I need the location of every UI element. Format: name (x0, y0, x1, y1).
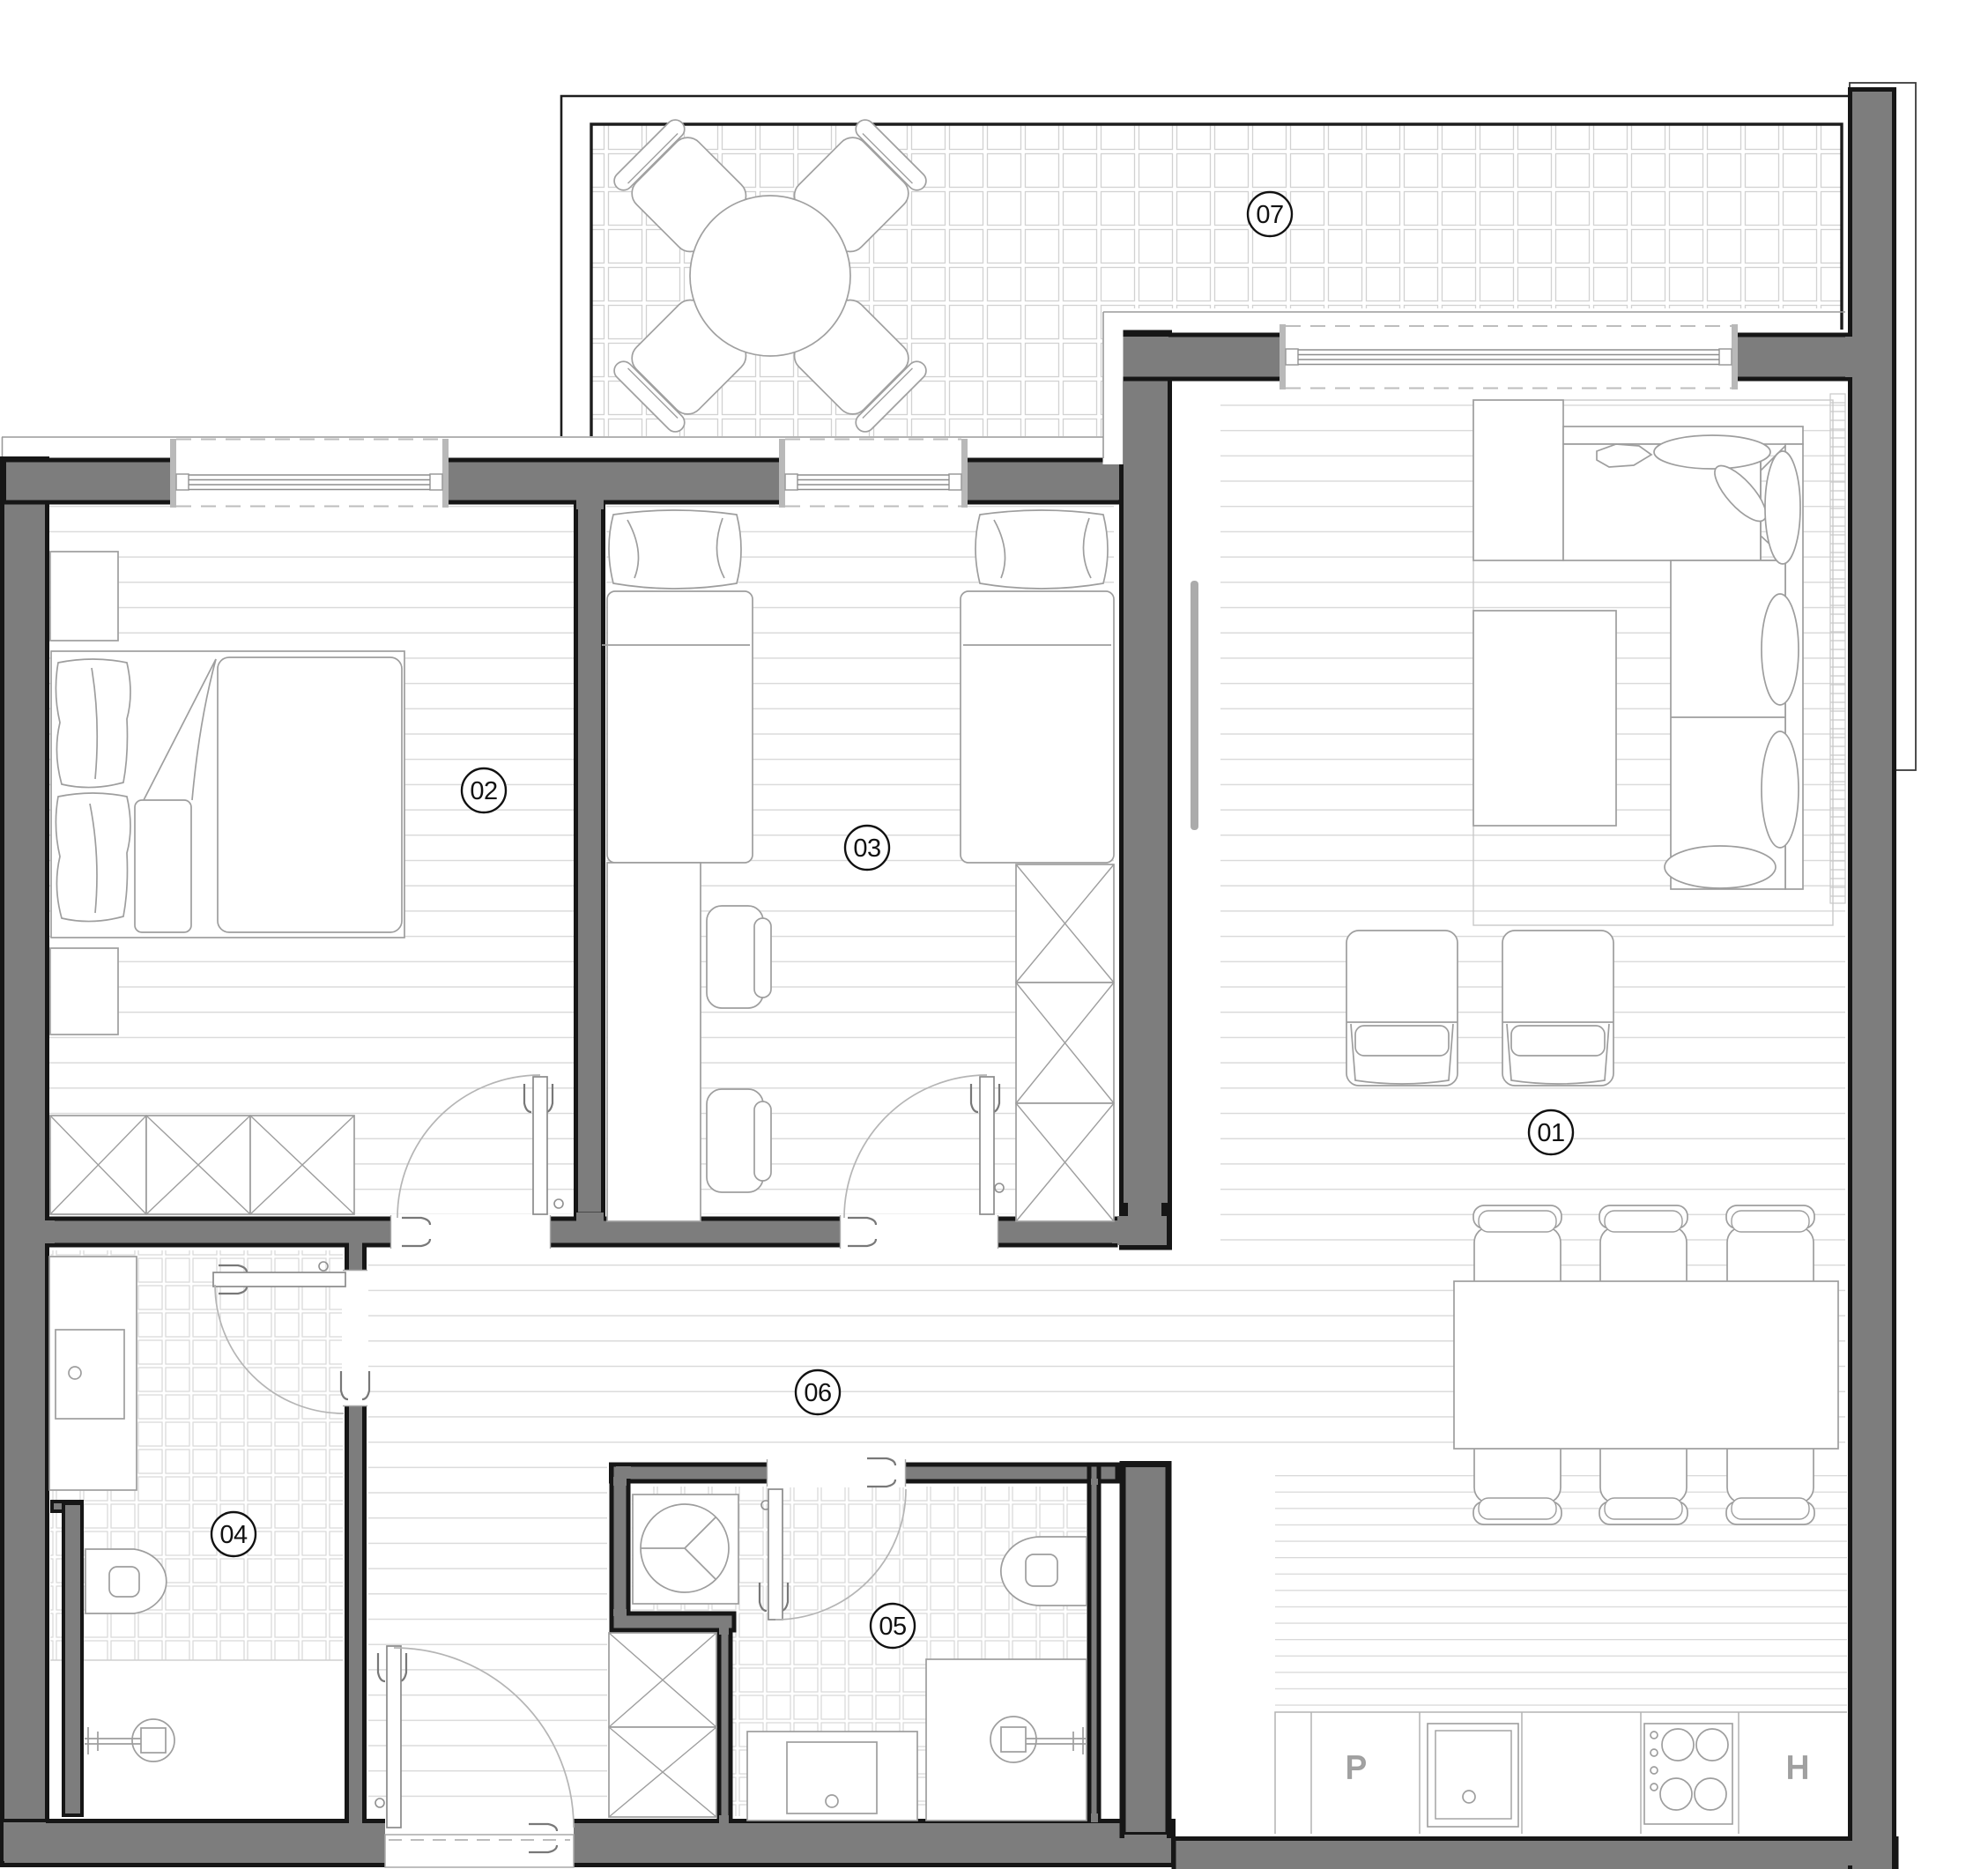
svg-text:02: 02 (470, 777, 497, 805)
svg-text:P: P (1346, 1749, 1367, 1785)
svg-text:04: 04 (219, 1521, 248, 1549)
svg-text:01: 01 (1537, 1119, 1564, 1147)
svg-text:07: 07 (1256, 201, 1283, 229)
svg-text:03: 03 (853, 834, 880, 863)
svg-text:06: 06 (804, 1379, 831, 1407)
svg-text:05: 05 (879, 1613, 906, 1641)
svg-text:H: H (1786, 1749, 1809, 1785)
